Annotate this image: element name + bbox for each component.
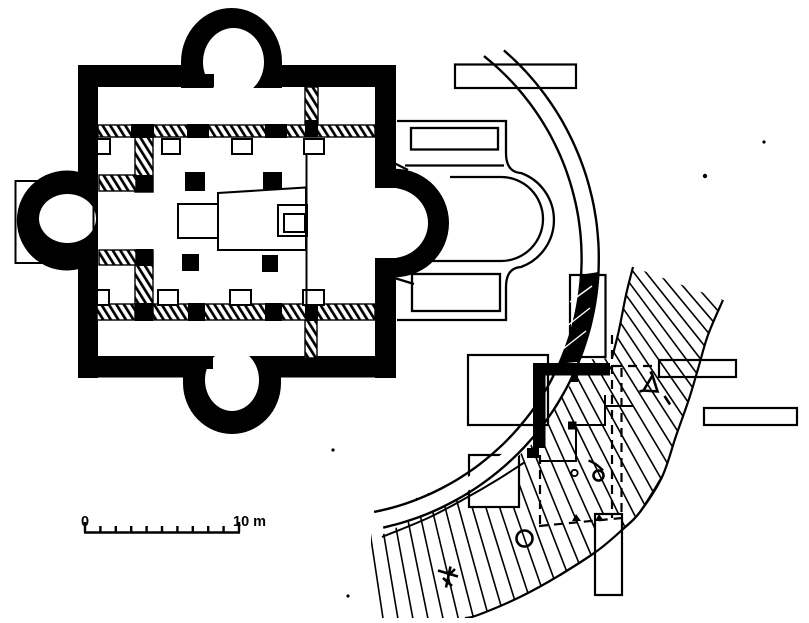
svg-text:0: 0 [81,514,89,530]
svg-text:10 m: 10 m [233,514,266,530]
